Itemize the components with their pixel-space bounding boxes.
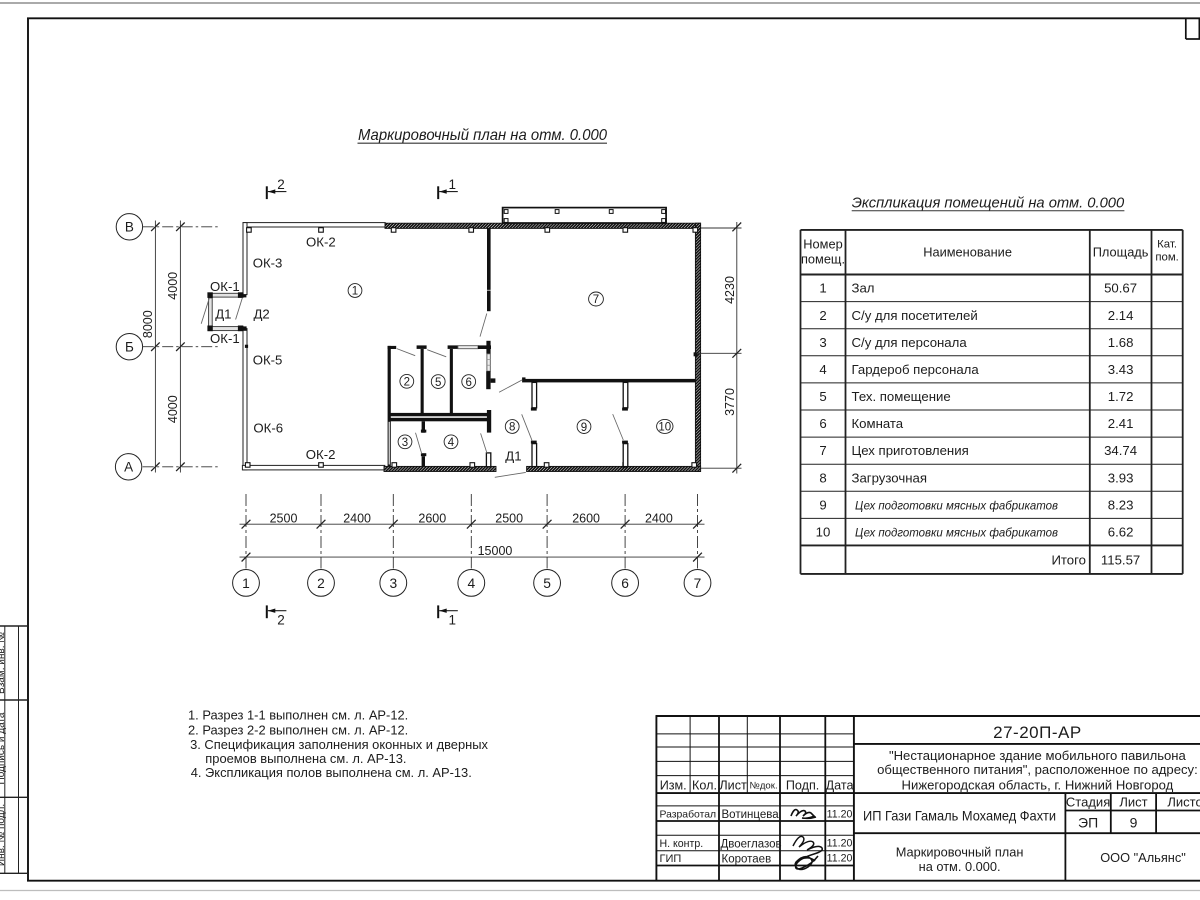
svg-text:1: 1: [819, 281, 826, 296]
svg-text:Разработал: Разработал: [660, 809, 717, 821]
svg-text:"Нестационарное здание мобильн: "Нестационарное здание мобильного павиль…: [889, 748, 1187, 763]
svg-text:Маркировочный план на отм. 0.0: Маркировочный план на отм. 0.000: [358, 127, 607, 144]
svg-text:Подп.: Подп.: [786, 778, 819, 792]
svg-text:Комната: Комната: [852, 416, 904, 431]
svg-text:Цех приготовления: Цех приготовления: [852, 443, 969, 458]
svg-text:6: 6: [819, 416, 826, 431]
svg-text:ЭП: ЭП: [1078, 814, 1098, 830]
svg-text:№док.: №док.: [750, 781, 778, 792]
svg-text:ОК-5: ОК-5: [253, 353, 283, 368]
svg-text:Б: Б: [125, 340, 134, 355]
svg-text:ОК-2: ОК-2: [306, 235, 336, 250]
svg-text:проемов выполнена см. л. АР-13: проемов выполнена см. л. АР-13.: [205, 751, 406, 766]
svg-text:на отм. 0.000.: на отм. 0.000.: [919, 859, 1001, 874]
svg-text:4000: 4000: [166, 272, 180, 300]
svg-text:7: 7: [694, 576, 702, 591]
svg-text:2400: 2400: [645, 512, 673, 526]
svg-text:Н. контр.: Н. контр.: [660, 838, 704, 850]
svg-text:50.67: 50.67: [1104, 281, 1137, 296]
svg-text:2: 2: [404, 377, 410, 389]
svg-text:Лист: Лист: [1119, 795, 1147, 810]
svg-text:Тех. помещение: Тех. помещение: [852, 389, 951, 404]
svg-text:27-20П-АР: 27-20П-АР: [993, 723, 1082, 742]
svg-text:Д1: Д1: [215, 306, 231, 321]
svg-text:2: 2: [819, 308, 826, 323]
svg-text:8000: 8000: [141, 310, 155, 338]
svg-text:8: 8: [509, 422, 515, 434]
svg-text:2: 2: [277, 613, 285, 628]
svg-text:общественного питания", распол: общественного питания", расположенное по…: [877, 762, 1198, 777]
svg-text:Лист: Лист: [719, 778, 747, 792]
svg-text:пом.: пом.: [1155, 252, 1179, 264]
svg-text:1: 1: [352, 286, 358, 298]
svg-text:ОК-6: ОК-6: [253, 421, 283, 436]
svg-text:ОК-2: ОК-2: [306, 447, 336, 462]
svg-text:8.23: 8.23: [1108, 498, 1134, 513]
svg-text:Дата: Дата: [826, 778, 854, 792]
svg-text:115.57: 115.57: [1101, 552, 1140, 567]
svg-text:2: 2: [277, 177, 285, 192]
svg-text:Д2: Д2: [254, 306, 270, 321]
svg-text:Стадия: Стадия: [1066, 795, 1110, 810]
svg-text:ОК-3: ОК-3: [253, 256, 283, 271]
svg-text:ООО "Альянс": ООО "Альянс": [1100, 850, 1186, 865]
svg-text:2600: 2600: [572, 512, 600, 526]
svg-text:2. Разрез 2-2 выполнен см. л.: 2. Разрез 2-2 выполнен см. л. АР-12.: [188, 722, 408, 737]
svg-text:9: 9: [1130, 814, 1138, 830]
svg-text:2: 2: [317, 576, 325, 591]
svg-text:1.68: 1.68: [1108, 335, 1134, 350]
svg-text:1: 1: [449, 613, 457, 628]
svg-text:С/у для посетителей: С/у для посетителей: [852, 308, 978, 323]
svg-text:3770: 3770: [723, 388, 737, 416]
svg-text:Гардероб персонала: Гардероб персонала: [852, 362, 980, 377]
svg-text:4. Экспликация полов выполнена: 4. Экспликация полов выполнена см. л. АР…: [191, 765, 472, 780]
svg-text:6.62: 6.62: [1108, 525, 1134, 540]
svg-text:3: 3: [389, 576, 397, 591]
svg-text:Кол.: Кол.: [692, 778, 717, 792]
svg-text:1. Разрез 1-1 выполнен см. л.: 1. Разрез 1-1 выполнен см. л. АР-12.: [188, 708, 408, 723]
svg-text:Двоеглазов: Двоеглазов: [721, 839, 782, 851]
svg-text:Д1: Д1: [505, 448, 521, 463]
svg-text:В: В: [125, 220, 134, 235]
svg-text:Нижегородская область, г. Нижн: Нижегородская область, г. Нижний Новгоро…: [902, 777, 1174, 792]
svg-text:4: 4: [467, 576, 475, 591]
svg-text:5: 5: [819, 389, 826, 404]
svg-text:3.93: 3.93: [1108, 470, 1134, 485]
svg-text:1: 1: [242, 576, 250, 591]
svg-text:11.20: 11.20: [827, 808, 853, 820]
svg-text:1: 1: [449, 177, 457, 192]
svg-text:Наименование: Наименование: [923, 245, 1012, 260]
svg-text:Подпись и дата: Подпись и дата: [0, 712, 7, 784]
svg-text:Итого: Итого: [1051, 552, 1086, 567]
svg-text:5: 5: [543, 576, 551, 591]
svg-text:2500: 2500: [270, 512, 298, 526]
svg-text:6: 6: [621, 576, 629, 591]
svg-text:3. Спецификация заполнения око: 3. Спецификация заполнения оконных и две…: [190, 737, 488, 752]
svg-text:11.20: 11.20: [827, 838, 853, 850]
svg-text:Изм.: Изм.: [660, 778, 687, 792]
svg-text:3.43: 3.43: [1108, 362, 1134, 377]
svg-text:помещ.: помещ.: [801, 251, 845, 266]
svg-text:Загрузочная: Загрузочная: [852, 470, 927, 485]
svg-text:Инв. № подл.: Инв. № подл.: [0, 804, 7, 866]
svg-text:ОК-1: ОК-1: [210, 279, 240, 294]
svg-text:34.74: 34.74: [1104, 443, 1137, 458]
svg-text:Номер: Номер: [803, 237, 842, 252]
svg-text:9: 9: [581, 422, 587, 434]
svg-text:2.41: 2.41: [1108, 416, 1134, 431]
svg-text:3: 3: [402, 437, 408, 449]
svg-text:Цех подготовки мясных фабрикат: Цех подготовки мясных фабрикатов: [855, 499, 1058, 513]
svg-text:С/у для персонала: С/у для персонала: [852, 335, 968, 350]
svg-text:ОК-1: ОК-1: [210, 331, 240, 346]
svg-text:Листов: Листов: [1167, 795, 1200, 810]
svg-text:10: 10: [816, 525, 831, 540]
svg-text:Цех подготовки мясных фабрикат: Цех подготовки мясных фабрикатов: [855, 526, 1058, 540]
svg-text:4000: 4000: [166, 395, 180, 423]
svg-text:15000: 15000: [478, 544, 513, 558]
svg-text:4: 4: [448, 437, 455, 449]
svg-text:Вотинцева: Вотинцева: [722, 809, 780, 821]
svg-text:Маркировочный план: Маркировочный план: [896, 845, 1024, 860]
svg-text:8: 8: [819, 470, 826, 485]
svg-text:3: 3: [819, 335, 826, 350]
svg-text:9: 9: [819, 498, 826, 513]
svg-text:А: А: [124, 460, 133, 475]
svg-text:Площадь: Площадь: [1093, 245, 1149, 260]
svg-text:Коротаев: Коротаев: [722, 853, 772, 865]
svg-text:4: 4: [819, 362, 826, 377]
svg-text:Взам. инв. №: Взам. инв. №: [0, 632, 7, 694]
svg-text:2.14: 2.14: [1108, 308, 1134, 323]
svg-text:5: 5: [435, 377, 441, 389]
svg-text:2600: 2600: [418, 512, 446, 526]
svg-text:7: 7: [819, 443, 826, 458]
svg-text:ИП Гази Гамаль Мохамед Фахти: ИП Гази Гамаль Мохамед Фахти: [863, 808, 1056, 824]
svg-text:Экспликация помещений на отм.: Экспликация помещений на отм. 0.000: [852, 194, 1125, 211]
svg-text:Кат.: Кат.: [1157, 238, 1177, 250]
svg-text:2400: 2400: [343, 512, 371, 526]
svg-text:1.72: 1.72: [1108, 389, 1134, 404]
svg-text:11.20: 11.20: [827, 853, 853, 865]
svg-text:7: 7: [593, 294, 599, 306]
svg-text:10: 10: [658, 422, 671, 434]
svg-text:Зал: Зал: [852, 281, 875, 296]
svg-text:4230: 4230: [723, 276, 737, 304]
svg-text:ГИП: ГИП: [660, 853, 682, 865]
svg-text:6: 6: [465, 377, 471, 389]
svg-text:2500: 2500: [495, 512, 523, 526]
